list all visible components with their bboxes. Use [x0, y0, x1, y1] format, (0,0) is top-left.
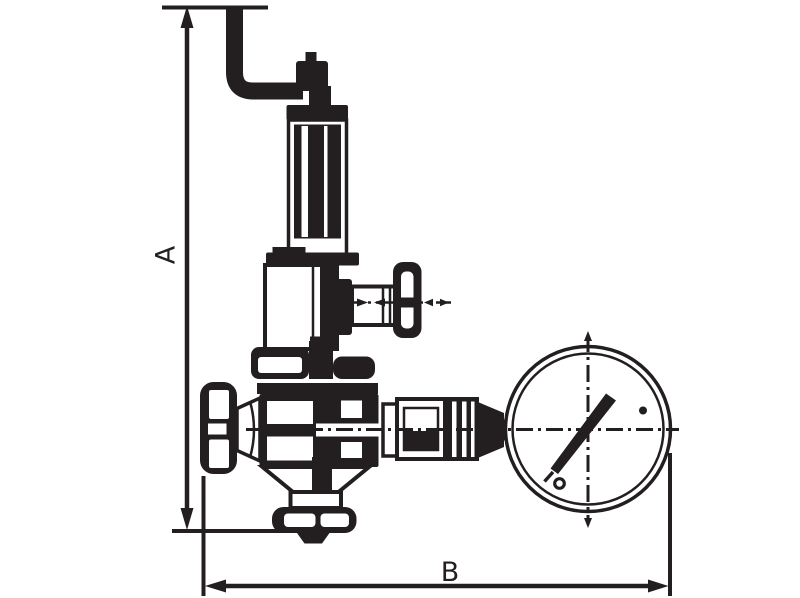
bottom-outlet: [263, 457, 370, 544]
body-window-tr: [341, 401, 362, 419]
diaphragm-chamber: [265, 262, 451, 349]
centerline-tip-icon: [584, 331, 592, 341]
centerline-tip-icon: [584, 518, 592, 528]
union-lower-fill: [405, 431, 438, 450]
flange-left-window: [258, 357, 302, 373]
hex-nut-rib: [452, 402, 457, 458]
outlet-flange-window-right: [321, 514, 350, 528]
spring-coils: [294, 125, 341, 239]
arrowhead-down-icon: [181, 508, 194, 530]
centerline-arrow-icon: [424, 299, 433, 306]
dimension-a-label: A: [151, 245, 182, 264]
dial-dot: [639, 407, 647, 415]
body-window-tl: [267, 401, 313, 424]
outlet-neck: [291, 492, 342, 508]
outlet-stub: [297, 533, 330, 544]
spring-housing: [266, 86, 359, 266]
flange-center: [309, 341, 333, 379]
flange-right-capsule: [333, 357, 375, 380]
arrowhead-left-icon: [205, 580, 226, 593]
handwheel-window-top: [209, 390, 229, 419]
body-window-br: [341, 442, 362, 458]
side-boss: [335, 279, 352, 335]
chamber-inner-wall: [320, 265, 337, 349]
needle-counterweight: [555, 479, 565, 489]
locknut-collar: [287, 105, 349, 120]
handle-rod: [235, 7, 304, 91]
valve-body: [257, 383, 379, 467]
outlet-flange-window-left: [284, 514, 316, 528]
body-top-plate: [257, 383, 378, 394]
dimension-b-label: B: [441, 557, 460, 588]
body-window-bl: [267, 437, 313, 461]
valve-drawing: A B: [0, 0, 800, 598]
handwheel-window-bottom: [209, 440, 229, 469]
arrowhead-right-icon: [648, 580, 669, 593]
spring-highlight-2: [324, 126, 328, 237]
bent-adjusting-handle: [235, 7, 329, 91]
centerline-arrow-icon: [440, 299, 449, 306]
housing-step: [273, 247, 306, 253]
technical-drawing-canvas: A B: [0, 0, 800, 598]
spring-highlight: [302, 126, 309, 237]
handwheel-hub-slot: [208, 424, 227, 435]
